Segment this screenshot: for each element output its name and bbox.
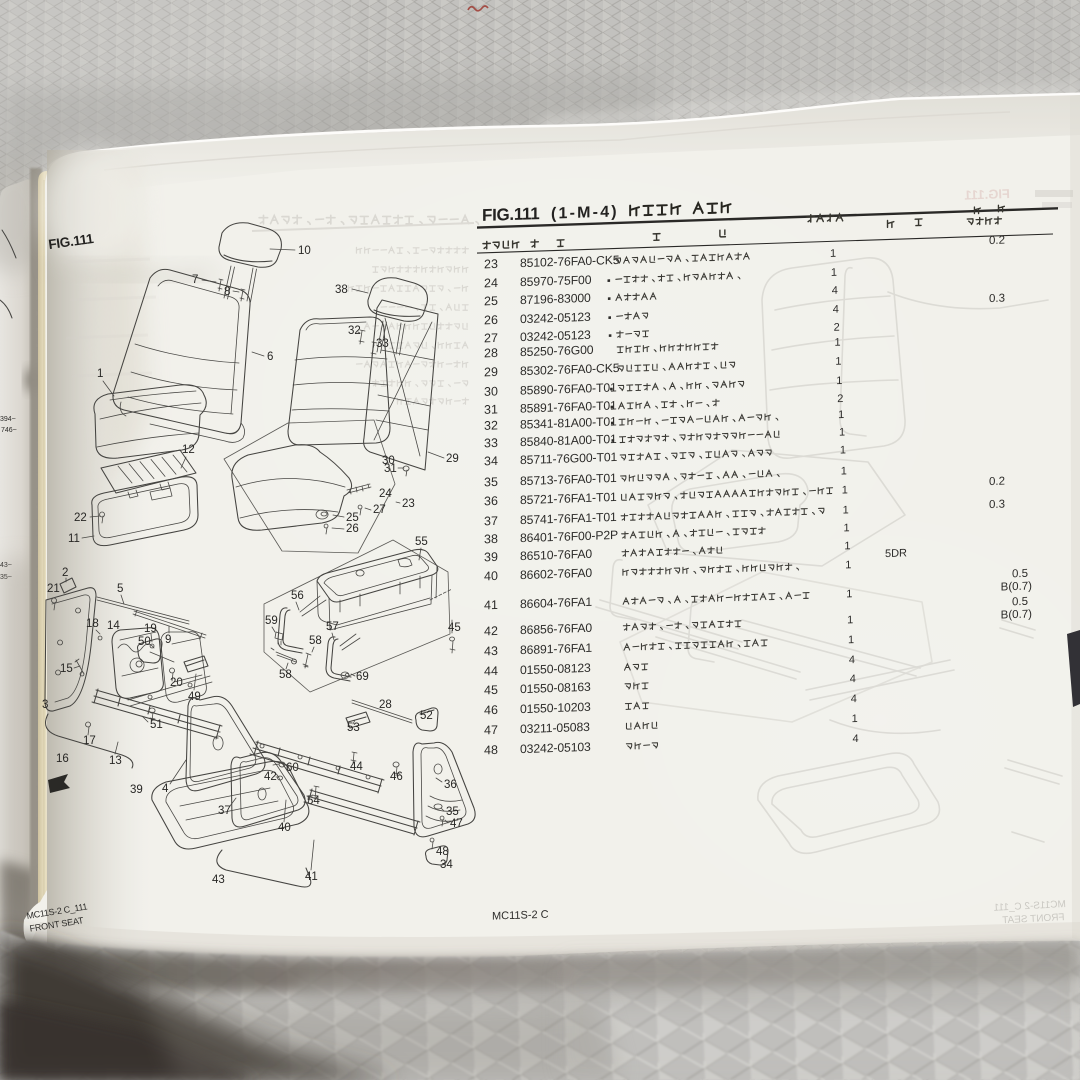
svg-text:0.2: 0.2 <box>989 235 1005 248</box>
svg-text:1: 1 <box>843 504 849 516</box>
svg-text:0.3: 0.3 <box>989 499 1005 512</box>
svg-text:51: 51 <box>150 719 163 731</box>
svg-text:38: 38 <box>335 284 348 296</box>
svg-text:69: 69 <box>356 671 369 683</box>
svg-text:27: 27 <box>373 504 386 516</box>
svg-text:20: 20 <box>170 677 183 689</box>
svg-text:5DR: 5DR <box>885 547 907 560</box>
svg-text:1: 1 <box>846 588 852 600</box>
svg-text:1: 1 <box>830 248 836 260</box>
svg-text:44: 44 <box>350 761 363 773</box>
svg-text:0.5: 0.5 <box>1012 568 1028 581</box>
svg-text:23: 23 <box>484 257 498 271</box>
svg-text:86602-76FA0: 86602-76FA0 <box>520 566 592 582</box>
svg-text:3: 3 <box>42 699 48 711</box>
svg-text:B(0.7): B(0.7) <box>1001 580 1032 593</box>
svg-text:43: 43 <box>212 874 225 886</box>
svg-text:30: 30 <box>484 384 498 398</box>
svg-text:40: 40 <box>484 569 498 583</box>
svg-text:4: 4 <box>851 693 857 705</box>
svg-text:37: 37 <box>218 805 231 817</box>
svg-text:86510-76FA0: 86510-76FA0 <box>520 547 592 563</box>
svg-text:48: 48 <box>484 743 498 757</box>
svg-text:(1-M-4): (1-M-4) <box>551 203 619 222</box>
svg-text:55: 55 <box>415 536 428 548</box>
svg-text:33: 33 <box>376 338 389 350</box>
svg-text:1: 1 <box>840 444 846 456</box>
svg-text:1: 1 <box>841 465 847 477</box>
svg-text:28: 28 <box>379 699 392 711</box>
svg-text:4: 4 <box>849 654 855 666</box>
svg-text:18: 18 <box>86 618 99 630</box>
svg-text:26: 26 <box>484 313 498 327</box>
svg-text:1: 1 <box>852 713 858 725</box>
svg-text:1: 1 <box>831 267 837 279</box>
svg-text:15: 15 <box>60 663 73 675</box>
svg-text:41: 41 <box>305 871 318 883</box>
svg-text:1: 1 <box>843 522 849 534</box>
svg-text:36: 36 <box>444 779 457 791</box>
svg-text:2: 2 <box>834 322 840 334</box>
svg-text:1: 1 <box>845 559 851 571</box>
svg-text:32: 32 <box>348 325 361 337</box>
svg-text:42: 42 <box>484 624 498 638</box>
svg-text:56: 56 <box>291 590 304 602</box>
svg-text:0.5: 0.5 <box>1012 596 1028 609</box>
svg-text:01550-08163: 01550-08163 <box>520 680 591 696</box>
svg-text:38: 38 <box>484 532 498 546</box>
svg-text:28: 28 <box>484 346 498 360</box>
svg-text:85970-75F00: 85970-75F00 <box>520 273 592 289</box>
svg-text:746~: 746~ <box>1 427 17 434</box>
svg-text:1: 1 <box>835 356 841 368</box>
svg-text:MC11S-2 C: MC11S-2 C <box>492 909 549 923</box>
svg-text:57: 57 <box>326 621 339 633</box>
svg-text:4: 4 <box>833 304 839 316</box>
svg-text:86604-76FA1: 86604-76FA1 <box>520 595 592 611</box>
svg-text:39: 39 <box>130 784 143 796</box>
svg-text:58: 58 <box>309 635 322 647</box>
svg-text:39: 39 <box>484 550 498 564</box>
svg-text:2: 2 <box>62 567 68 579</box>
svg-text:29: 29 <box>446 453 459 465</box>
svg-text:24: 24 <box>484 276 498 290</box>
svg-text:4: 4 <box>850 673 856 685</box>
svg-text:13: 13 <box>109 755 122 767</box>
svg-text:B(0.7): B(0.7) <box>1001 608 1032 621</box>
svg-text:2: 2 <box>837 393 843 405</box>
svg-text:01550-10203: 01550-10203 <box>520 700 591 716</box>
svg-text:22: 22 <box>74 512 87 524</box>
svg-text:34: 34 <box>440 859 453 871</box>
svg-text:11: 11 <box>68 533 80 545</box>
svg-text:03242-05103: 03242-05103 <box>520 740 591 756</box>
svg-text:42: 42 <box>264 771 277 783</box>
svg-text:23: 23 <box>402 498 415 510</box>
svg-text:44: 44 <box>484 664 498 678</box>
svg-text:47: 47 <box>484 723 498 737</box>
svg-text:6: 6 <box>267 351 273 363</box>
svg-text:47: 47 <box>450 818 463 830</box>
svg-text:4: 4 <box>162 783 169 795</box>
svg-text:1: 1 <box>835 337 841 349</box>
svg-text:37: 37 <box>484 514 498 528</box>
svg-text:FIG.111: FIG.111 <box>964 186 1010 203</box>
svg-text:46: 46 <box>390 771 403 783</box>
svg-text:19: 19 <box>144 623 157 635</box>
svg-text:26: 26 <box>346 523 359 535</box>
svg-text:1: 1 <box>848 634 854 646</box>
svg-text:35: 35 <box>484 475 498 489</box>
svg-text:52: 52 <box>420 710 433 722</box>
svg-text:58: 58 <box>279 669 292 681</box>
svg-text:1: 1 <box>836 375 842 387</box>
svg-text:31: 31 <box>484 402 498 416</box>
svg-text:46: 46 <box>484 703 498 717</box>
svg-text:1: 1 <box>844 540 850 552</box>
svg-text:4: 4 <box>853 733 859 745</box>
svg-text:32: 32 <box>484 418 498 432</box>
svg-text:43: 43 <box>484 644 498 658</box>
svg-text:50: 50 <box>138 636 151 648</box>
svg-text:14: 14 <box>107 620 120 632</box>
svg-text:10: 10 <box>298 245 311 257</box>
svg-text:01550-08123: 01550-08123 <box>520 661 591 677</box>
svg-text:34: 34 <box>484 454 498 468</box>
svg-text:25: 25 <box>484 294 498 308</box>
svg-text:41: 41 <box>484 598 498 612</box>
svg-text:45: 45 <box>484 683 498 697</box>
svg-text:86856-76FA0: 86856-76FA0 <box>520 621 592 637</box>
svg-text:29: 29 <box>484 365 498 379</box>
svg-text:27: 27 <box>484 331 498 345</box>
svg-text:1: 1 <box>847 614 853 626</box>
svg-text:16: 16 <box>56 753 69 765</box>
svg-text:40: 40 <box>278 822 291 834</box>
svg-text:03242-05123: 03242-05123 <box>520 328 591 344</box>
svg-text:36: 36 <box>484 494 498 508</box>
svg-text:12: 12 <box>182 444 195 456</box>
svg-text:1: 1 <box>97 368 103 380</box>
svg-text:7: 7 <box>192 274 198 286</box>
svg-text:1: 1 <box>842 484 848 496</box>
svg-text:0.3: 0.3 <box>989 293 1005 306</box>
svg-text:86891-76FA1: 86891-76FA1 <box>520 641 592 657</box>
svg-text:85250-76G00: 85250-76G00 <box>520 343 594 359</box>
svg-text:33: 33 <box>484 436 498 450</box>
svg-text:24: 24 <box>379 488 392 500</box>
svg-text:87196-83000: 87196-83000 <box>520 291 591 307</box>
svg-text:03242-05123: 03242-05123 <box>520 310 591 326</box>
svg-text:1: 1 <box>838 409 844 421</box>
svg-text:FIG.111: FIG.111 <box>482 204 539 225</box>
svg-text:4: 4 <box>832 285 838 297</box>
svg-text:35: 35 <box>446 806 459 818</box>
svg-text:9: 9 <box>165 634 171 646</box>
svg-text:59: 59 <box>265 615 278 627</box>
svg-text:0.2: 0.2 <box>989 476 1005 489</box>
svg-text:45: 45 <box>448 622 461 634</box>
svg-text:03211-05083: 03211-05083 <box>520 720 590 736</box>
svg-text:21: 21 <box>47 583 60 595</box>
svg-text:394~: 394~ <box>0 416 16 423</box>
svg-text:1: 1 <box>839 426 845 438</box>
svg-text:5: 5 <box>117 583 123 595</box>
